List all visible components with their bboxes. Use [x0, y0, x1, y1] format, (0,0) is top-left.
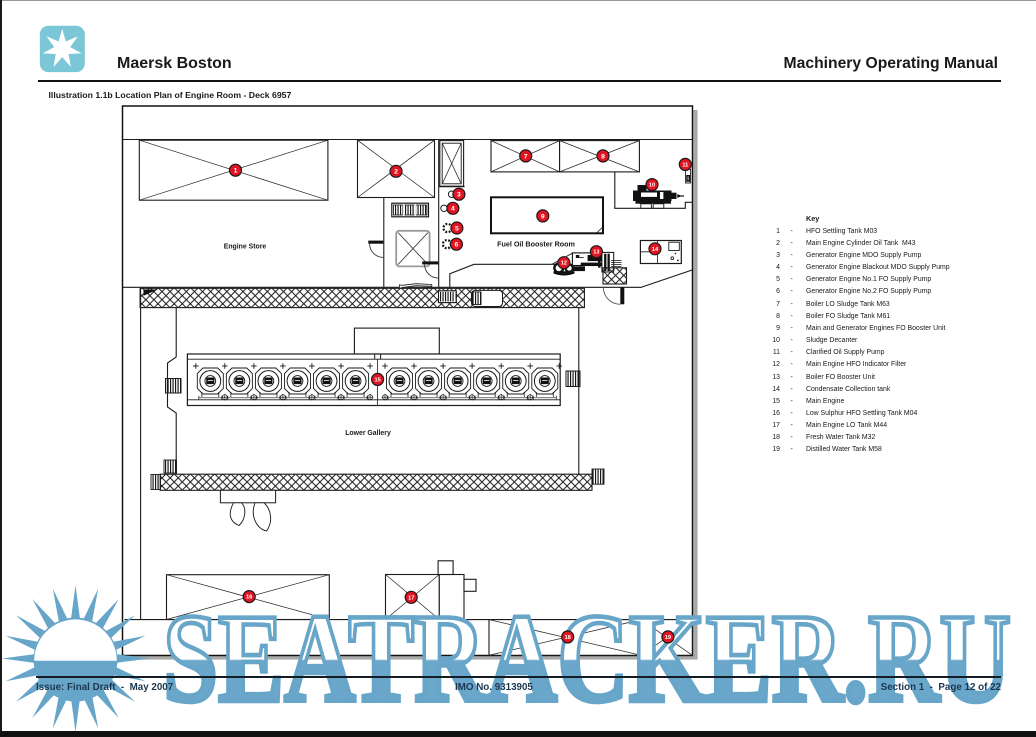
- svg-text:18: 18: [565, 635, 571, 641]
- svg-text:19: 19: [665, 635, 671, 641]
